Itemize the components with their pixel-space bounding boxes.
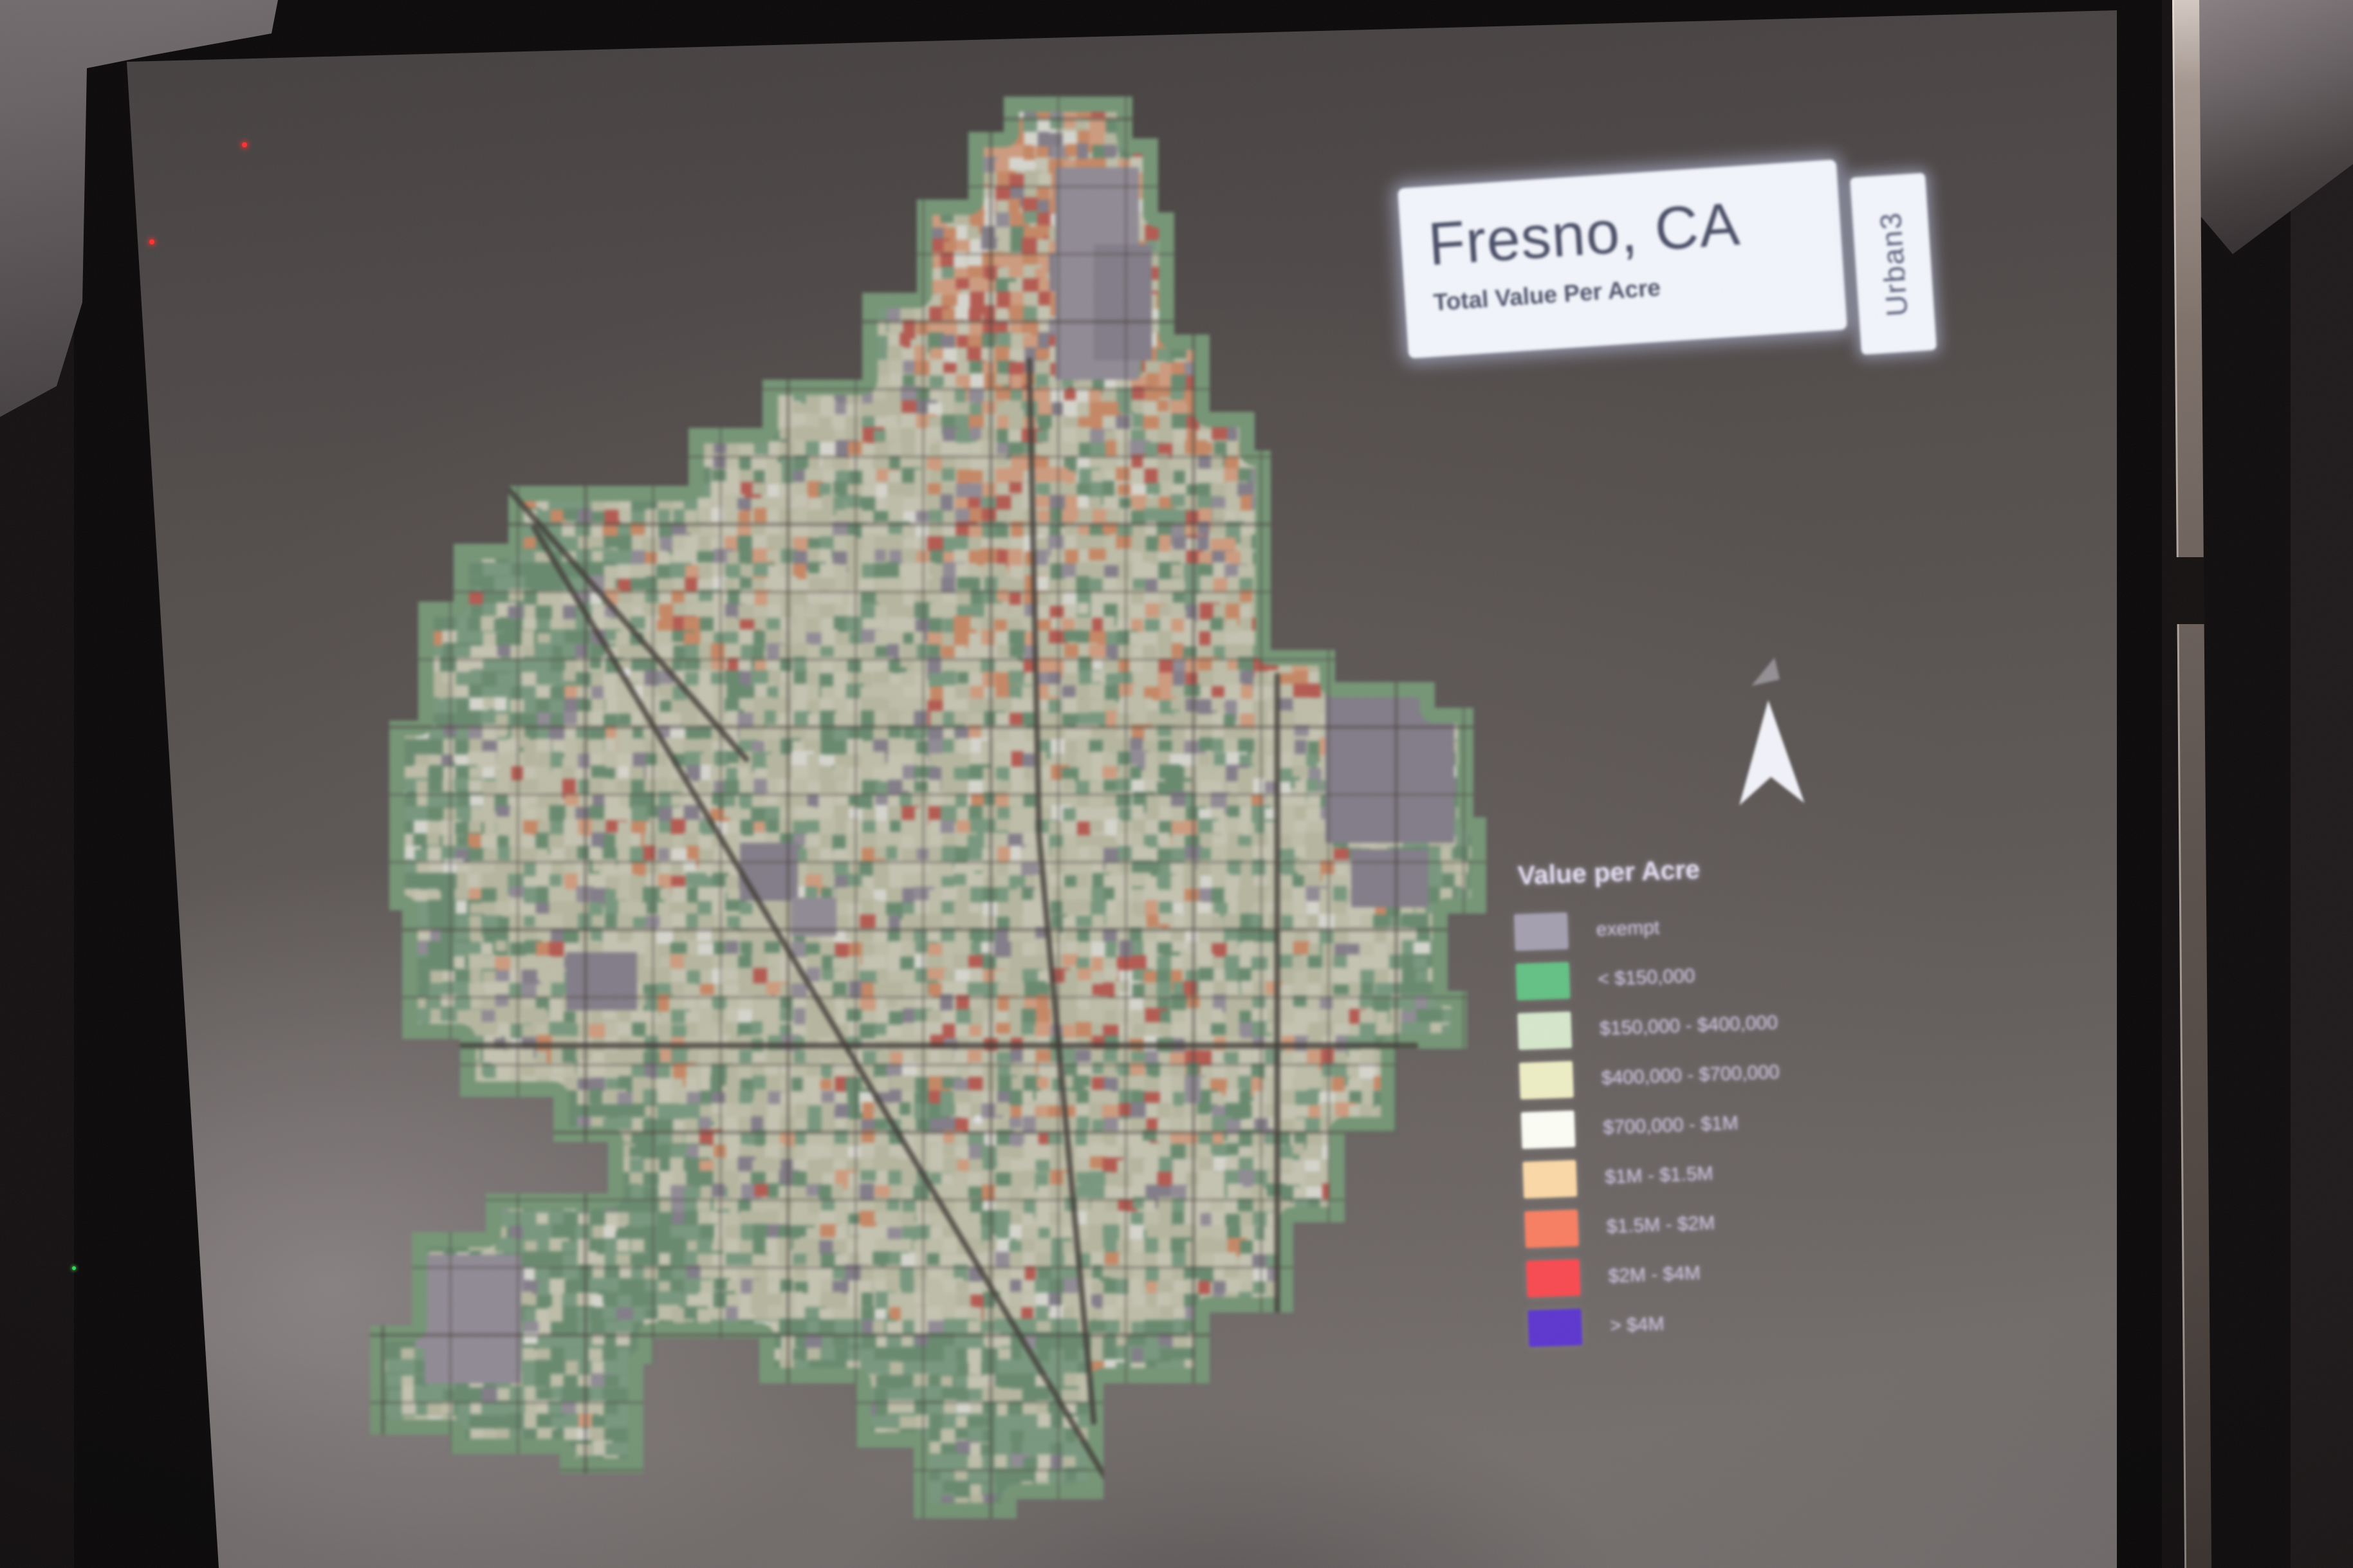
legend-item: $1.5M - $2M [1524, 1203, 1786, 1248]
legend-swatch [1516, 962, 1571, 1001]
legend-item: > $4M [1527, 1301, 1789, 1347]
legend-item: $700,000 - $1M [1521, 1103, 1782, 1149]
legend-swatch [1526, 1259, 1581, 1298]
urban3-logo: Urban3 [1850, 172, 1937, 355]
laser-dot [242, 142, 247, 147]
doorway-shadow [2197, 193, 2291, 1568]
legend-swatch [1517, 1011, 1572, 1050]
urban3-logo-text: Urban3 [1872, 210, 1914, 317]
legend-label: $150,000 - $400,000 [1600, 1011, 1778, 1040]
legend-label: $2M - $4M [1608, 1262, 1701, 1287]
slide-content: Fresno, CA Total Value Per Acre Urban3 V… [0, 0, 2353, 1568]
legend-item: $1M - $1.5M [1522, 1153, 1784, 1199]
legend: Value per Acre exempt < $150,000 $150,00… [1512, 852, 1789, 1360]
north-arrow-icon [1734, 699, 1806, 806]
title-box: Fresno, CA Total Value Per Acre [1398, 160, 1847, 359]
projection-photo: Fresno, CA Total Value Per Acre Urban3 V… [0, 0, 2353, 1568]
legend-label: $400,000 - $700,000 [1601, 1061, 1780, 1089]
legend-swatch [1522, 1160, 1577, 1199]
legend-swatch [1527, 1309, 1582, 1347]
legend-swatch [1524, 1210, 1579, 1248]
legend-label: < $150,000 [1598, 965, 1695, 990]
laser-dot [149, 239, 154, 244]
legend-item: $400,000 - $700,000 [1519, 1054, 1780, 1100]
room-wall [2284, 0, 2353, 1568]
legend-label: $700,000 - $1M [1603, 1112, 1739, 1138]
legend-item: exempt [1514, 905, 1775, 951]
legend-label: > $4M [1610, 1313, 1665, 1337]
legend-label: exempt [1596, 917, 1660, 941]
pole-clamp [2170, 557, 2205, 624]
legend-item: $150,000 - $400,000 [1517, 1004, 1778, 1050]
north-arrow-ghost-icon [1751, 658, 1782, 688]
page-title: Fresno, CA [1426, 183, 1842, 279]
laser-dot-green [72, 1266, 76, 1270]
legend-label: $1M - $1.5M [1605, 1163, 1713, 1188]
legend-title: Value per Acre [1517, 852, 1773, 891]
legend-item: < $150,000 [1516, 955, 1777, 1001]
legend-swatch [1521, 1111, 1576, 1149]
legend-swatch [1519, 1061, 1574, 1100]
legend-swatch [1514, 912, 1569, 951]
legend-item: $2M - $4M [1526, 1252, 1787, 1298]
legend-label: $1.5M - $2M [1606, 1212, 1715, 1238]
